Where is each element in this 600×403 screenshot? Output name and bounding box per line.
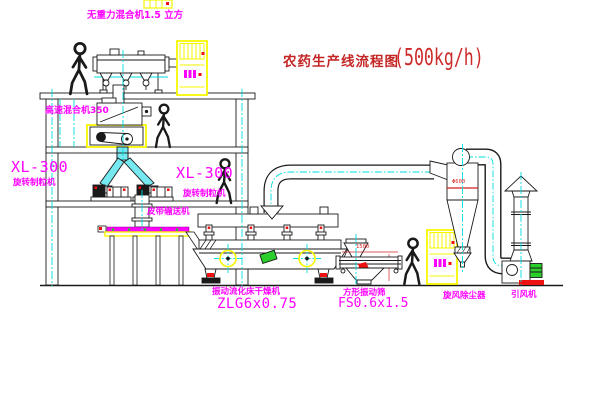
belt-conveyor-label: 皮带输送机 xyxy=(147,208,190,217)
induced-draft-fan xyxy=(502,261,544,285)
diagram-title-capacity: (500kg/h) xyxy=(394,47,484,70)
pesticide-line-flow-diagram: 农药生产线流程图 (500kg/h) 无重力混合机1.5 立方 高速混合机350… xyxy=(0,0,600,403)
fluid-bed-dryer xyxy=(193,206,356,283)
belt-conveyor xyxy=(98,226,206,285)
vacuum-feeder-right xyxy=(427,230,457,284)
dryer-model-label: ZLG6x0.75 xyxy=(217,297,297,311)
draft-fan-label: 引风机 xyxy=(511,291,537,300)
cyclone-label: 旋风除尘器 xyxy=(443,292,486,301)
cyclone-diameter-dim: Φ600 xyxy=(452,180,465,186)
sieve-length-dim: 1500 xyxy=(356,245,369,251)
person-second-floor xyxy=(156,105,170,147)
granulator-model-right-label: XL-300 xyxy=(176,166,233,181)
diagram-title: 农药生产线流程图 xyxy=(283,56,399,70)
person-top-floor xyxy=(70,43,87,94)
vacuum-feeder-top xyxy=(177,41,207,95)
granulator-model-left-label: XL-300 xyxy=(11,160,68,175)
gravity-mixer-label: 无重力混合机1.5 立方 xyxy=(87,11,183,21)
dryer-exhaust-duct xyxy=(271,172,434,213)
granulator-name-left-label: 旋转制粒机 xyxy=(13,179,56,188)
rotary-granulators xyxy=(91,185,173,201)
high-speed-mixer-label: 高速混合机350 xyxy=(45,107,109,116)
top-hoist-frame xyxy=(144,0,172,8)
sieve-model-label: FS0.6x1.5 xyxy=(338,297,408,310)
granulator-name-right-label: 旋转制粒机 xyxy=(183,190,226,199)
person-ground-floor xyxy=(404,239,419,284)
